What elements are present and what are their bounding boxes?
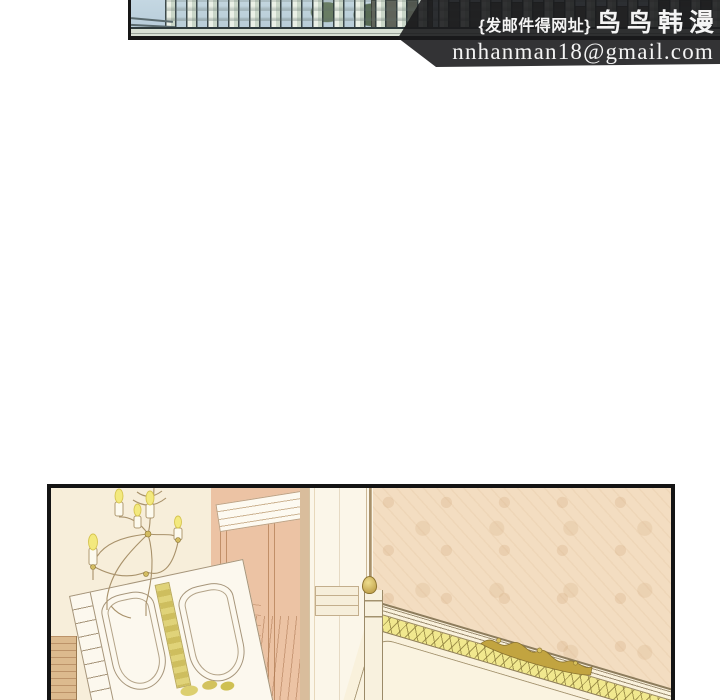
watermark-text-block: {发邮件得网址} 鸟鸟韩漫 nnhanman18@gmail.com bbox=[452, 3, 714, 65]
watermark-line1: {发邮件得网址} 鸟鸟韩漫 bbox=[452, 3, 714, 39]
watermark-brand: 鸟鸟韩漫 bbox=[596, 3, 720, 39]
pillar-molding bbox=[315, 586, 359, 616]
bedpost bbox=[364, 590, 383, 700]
bottom-panel bbox=[47, 484, 675, 700]
comic-page: {发邮件得网址} 鸟鸟韩漫 nnhanman18@gmail.com bbox=[0, 0, 720, 700]
chandelier-illustration bbox=[51, 486, 251, 638]
watermark-email: nnhanman18@gmail.com bbox=[452, 39, 714, 65]
gold-finial bbox=[362, 576, 377, 594]
watermark-ribbon: {发邮件得网址} 鸟鸟韩漫 nnhanman18@gmail.com bbox=[390, 0, 720, 70]
hanging-cord bbox=[369, 488, 371, 582]
watermark-prefix: {发邮件得网址} bbox=[479, 12, 591, 36]
left-wood-edge bbox=[51, 636, 77, 700]
